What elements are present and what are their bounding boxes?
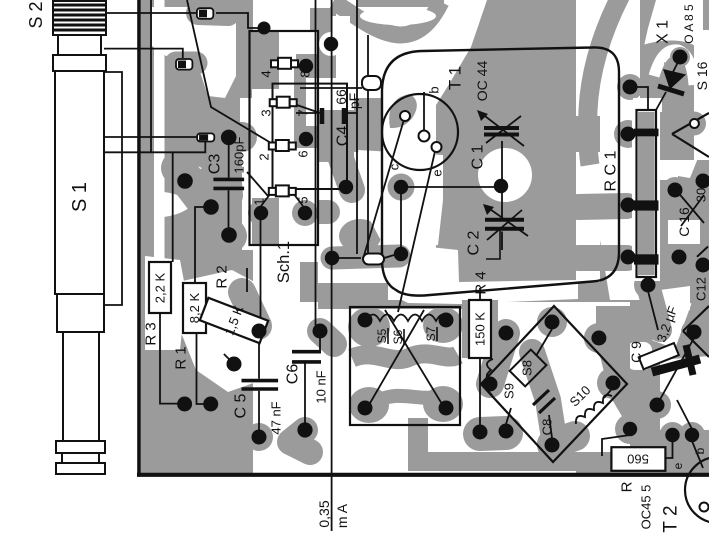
svg-text:S6: S6 [391,329,405,344]
svg-text:R 3: R 3 [143,322,160,345]
svg-text:C 2: C 2 [466,230,483,255]
svg-text:b: b [427,86,442,93]
svg-text:m A: m A [334,503,350,528]
svg-text:S 16: S 16 [694,61,709,90]
svg-text:T 1: T 1 [446,66,465,90]
svg-text:b: b [693,447,707,454]
svg-text:R 1: R 1 [173,346,190,369]
svg-text:S7: S7 [424,326,438,341]
svg-text:C 1: C 1 [470,144,487,169]
svg-text:1: 1 [252,198,267,205]
svg-text:2: 2 [257,153,272,160]
svg-text:C 9: C 9 [628,341,644,363]
svg-text:C6: C6 [285,364,302,385]
svg-text:O A 8 5: O A 8 5 [682,4,696,44]
svg-text:OC45 5: OC45 5 [639,485,654,530]
svg-text:T 2: T 2 [661,505,682,532]
svg-text:c: c [387,163,402,170]
svg-text:S9: S9 [502,383,517,399]
svg-text:5: 5 [296,196,311,203]
svg-text:S5: S5 [375,328,389,343]
svg-text:X 1: X 1 [655,20,672,44]
svg-text:2,2 K: 2,2 K [153,272,168,303]
svg-text:47 nF: 47 nF [269,401,284,434]
svg-text:C4: C4 [335,126,352,147]
svg-text:6: 6 [296,150,311,157]
svg-text:7: 7 [296,109,311,116]
svg-text:R C 1: R C 1 [603,150,620,191]
svg-text:560: 560 [627,452,649,467]
svg-text:S 1: S 1 [69,182,91,212]
svg-text:160pF: 160pF [232,137,247,174]
svg-text:8: 8 [298,70,313,77]
svg-text:Sch.1: Sch.1 [275,241,293,283]
svg-text:0,35: 0,35 [316,500,332,527]
svg-text:10 nF: 10 nF [314,370,329,403]
svg-text:C3: C3 [207,154,224,175]
svg-text:S8: S8 [520,360,535,376]
svg-text:OC 44: OC 44 [474,61,490,102]
svg-text:C 16: C 16 [676,207,692,237]
svg-text:4: 4 [259,70,274,77]
svg-text:pF: pF [346,93,362,109]
svg-text:C12: C12 [694,277,709,301]
svg-text:C8: C8 [540,419,555,436]
svg-text:150 K: 150 K [473,312,488,346]
svg-text:e: e [430,169,445,176]
svg-text:30: 30 [694,188,709,202]
svg-text:8,2 K: 8,2 K [187,292,202,323]
svg-text:C 5: C 5 [233,393,250,418]
svg-text:3: 3 [259,109,274,116]
svg-text:R 2: R 2 [214,265,231,288]
svg-text:e: e [671,462,685,469]
svg-text:S 2: S 2 [26,1,46,28]
svg-text:R: R [619,481,636,492]
svg-text:R 4: R 4 [473,271,490,294]
